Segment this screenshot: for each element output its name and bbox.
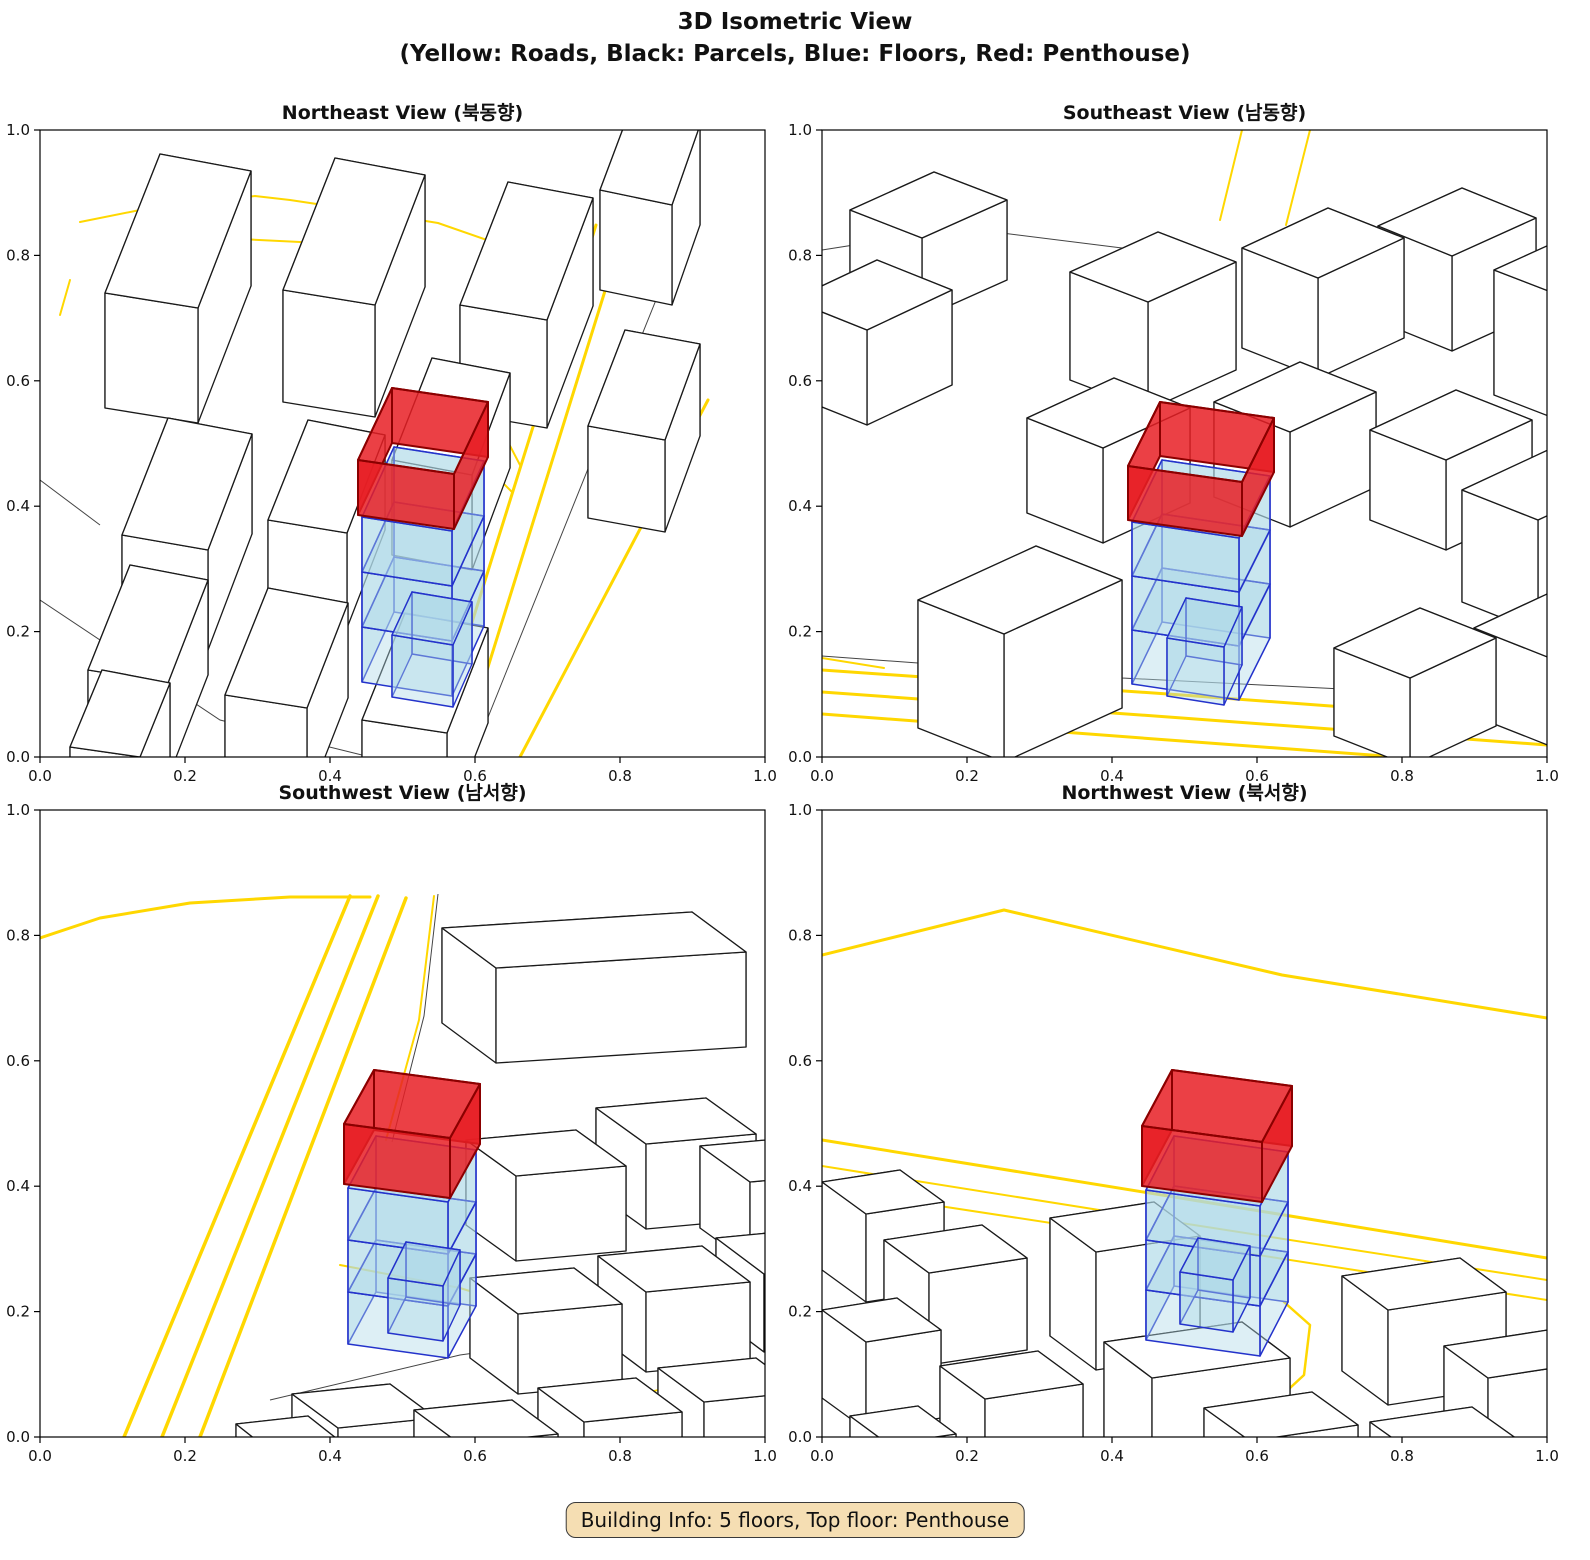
y-tick-label: 0.6 [6,372,30,390]
y-tick-label: 0.0 [6,748,30,766]
y-tick-label: 0.2 [788,623,812,641]
y-tick-label: 0.6 [6,1052,30,1070]
x-tick-label: 0.6 [463,767,487,785]
y-tick-label: 0.4 [6,497,30,515]
parcel-building-side [646,1282,750,1372]
y-tick-label: 1.0 [6,802,30,819]
y-tick-label: 1.0 [6,122,30,139]
y-tick-label: 0.6 [788,372,812,390]
road-line [1286,130,1310,225]
parcel-building-side [600,190,672,305]
road-line [1220,130,1242,220]
parcel-boundary-line [40,480,100,525]
scene [40,122,708,794]
parcel-building-side [105,293,198,423]
view-southeast-plot: 0.00.00.20.20.40.40.60.60.80.81.01.0 [782,122,1562,794]
y-tick-label: 0.0 [6,1428,30,1446]
x-tick-label: 0.0 [810,767,834,785]
view-southwest-plot: 0.00.00.20.20.40.40.60.60.80.81.01.0 [0,802,780,1474]
y-tick-label: 1.0 [788,802,812,819]
x-tick-label: 1.0 [753,1447,777,1465]
x-tick-label: 0.2 [173,1447,197,1465]
parcel-building-side [225,695,307,794]
x-tick-label: 0.0 [28,767,52,785]
view-northeast-plot: 0.00.00.20.20.40.40.60.60.80.81.01.0 [0,122,780,794]
y-tick-label: 0.4 [788,497,812,515]
y-tick-label: 0.8 [6,246,30,264]
parcel-building-side [283,290,375,417]
x-tick-label: 0.4 [1100,767,1124,785]
x-tick-label: 1.0 [753,767,777,785]
parcel-building-side [1548,450,1562,592]
x-tick-label: 0.2 [955,1447,979,1465]
x-tick-label: 0.8 [1390,1447,1414,1465]
building-info-box: Building Info: 5 floors, Top floor: Pent… [566,1502,1025,1538]
y-tick-label: 1.0 [788,122,812,139]
parcel-building-side [929,1258,1027,1365]
y-tick-label: 0.2 [788,1303,812,1321]
figure-title-line2: (Yellow: Roads, Black: Parcels, Blue: Fl… [0,38,1590,70]
y-tick-label: 0.2 [6,623,30,641]
figure-title: 3D Isometric View (Yellow: Roads, Black:… [0,6,1590,70]
y-tick-label: 0.0 [788,1428,812,1446]
y-tick-label: 0.2 [6,1303,30,1321]
road-line [40,897,370,938]
floor-annex-box-side [388,1278,443,1341]
x-tick-label: 1.0 [1535,767,1559,785]
x-tick-label: 0.0 [810,1447,834,1465]
x-tick-label: 0.6 [463,1447,487,1465]
y-tick-label: 0.8 [6,926,30,944]
floor-annex-box-side [392,635,453,707]
y-tick-label: 0.8 [788,926,812,944]
floor-annex-box-side [1180,1272,1233,1332]
parcel-building-side [496,952,746,1063]
figure-title-line1: 3D Isometric View [0,6,1590,38]
parcel-building-side [588,426,665,532]
subplot-title-northeast: Northeast View (북동향) [40,98,765,125]
scene [822,910,1562,1474]
parcel-building-side [584,1412,682,1474]
parcel-building-side [1494,270,1562,425]
parcel-building-side [1415,1439,1517,1474]
parcel-building-side [985,1384,1083,1474]
parcel-building-side [1550,618,1562,746]
y-tick-label: 0.0 [788,748,812,766]
floor-annex-box-side [1167,638,1224,705]
y-tick-label: 0.8 [788,246,812,264]
x-tick-label: 0.4 [318,1447,342,1465]
parcel-building-side [1560,588,1562,706]
scene [792,130,1562,768]
x-tick-label: 0.8 [608,1447,632,1465]
x-tick-label: 0.2 [955,767,979,785]
x-tick-label: 0.8 [1390,767,1414,785]
x-tick-label: 1.0 [1535,1447,1559,1465]
x-tick-label: 0.4 [1100,1447,1124,1465]
parcel-building-side [1548,1330,1562,1452]
x-tick-label: 0.6 [1245,767,1269,785]
x-tick-label: 0.2 [173,767,197,785]
x-tick-label: 0.4 [318,767,342,785]
scene [40,894,780,1474]
road-line [822,910,1547,1018]
road-line [124,896,350,1437]
x-tick-label: 0.6 [1245,1447,1269,1465]
y-tick-label: 0.4 [6,1177,30,1195]
road-line [60,280,70,315]
y-tick-label: 0.4 [788,1177,812,1195]
subplot-title-southeast: Southeast View (남동향) [822,98,1547,125]
y-tick-label: 0.6 [788,1052,812,1070]
view-northwest-plot: 0.00.00.20.20.40.40.60.60.80.81.01.0 [782,802,1562,1474]
parcel-building-side [764,1264,780,1352]
x-tick-label: 0.8 [608,767,632,785]
parcel-building-side [888,1434,956,1474]
x-tick-label: 0.0 [28,1447,52,1465]
parcel-building-side [516,1166,626,1261]
